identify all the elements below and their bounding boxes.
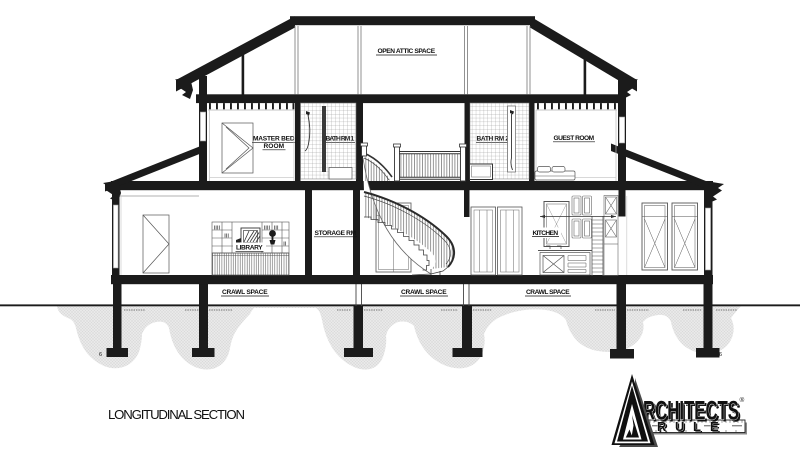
svg-text:CRAWL SPACE: CRAWL SPACE — [401, 289, 447, 296]
svg-text:CRAWL SPACE: CRAWL SPACE — [222, 289, 268, 296]
svg-text:MASTER BED: MASTER BED — [253, 136, 295, 143]
svg-text:®: ® — [740, 396, 745, 404]
svg-text:KITCHEN: KITCHEN — [533, 230, 559, 237]
svg-text:ROOM: ROOM — [264, 143, 285, 150]
svg-text:CRAWL SPACE: CRAWL SPACE — [526, 289, 570, 296]
svg-text:STORAGE RM: STORAGE RM — [315, 230, 357, 237]
svg-text:LIBRARY: LIBRARY — [236, 245, 263, 252]
svg-text:LONGITUDINAL SECTION: LONGITUDINAL SECTION — [108, 407, 245, 422]
svg-text:GUEST ROOM: GUEST ROOM — [554, 135, 595, 142]
svg-text:6: 6 — [99, 352, 102, 358]
svg-text:RCHITECTS: RCHITECTS — [643, 396, 739, 426]
svg-text:6: 6 — [719, 352, 722, 358]
svg-text:OPEN ATTIC SPACE: OPEN ATTIC SPACE — [378, 48, 436, 55]
